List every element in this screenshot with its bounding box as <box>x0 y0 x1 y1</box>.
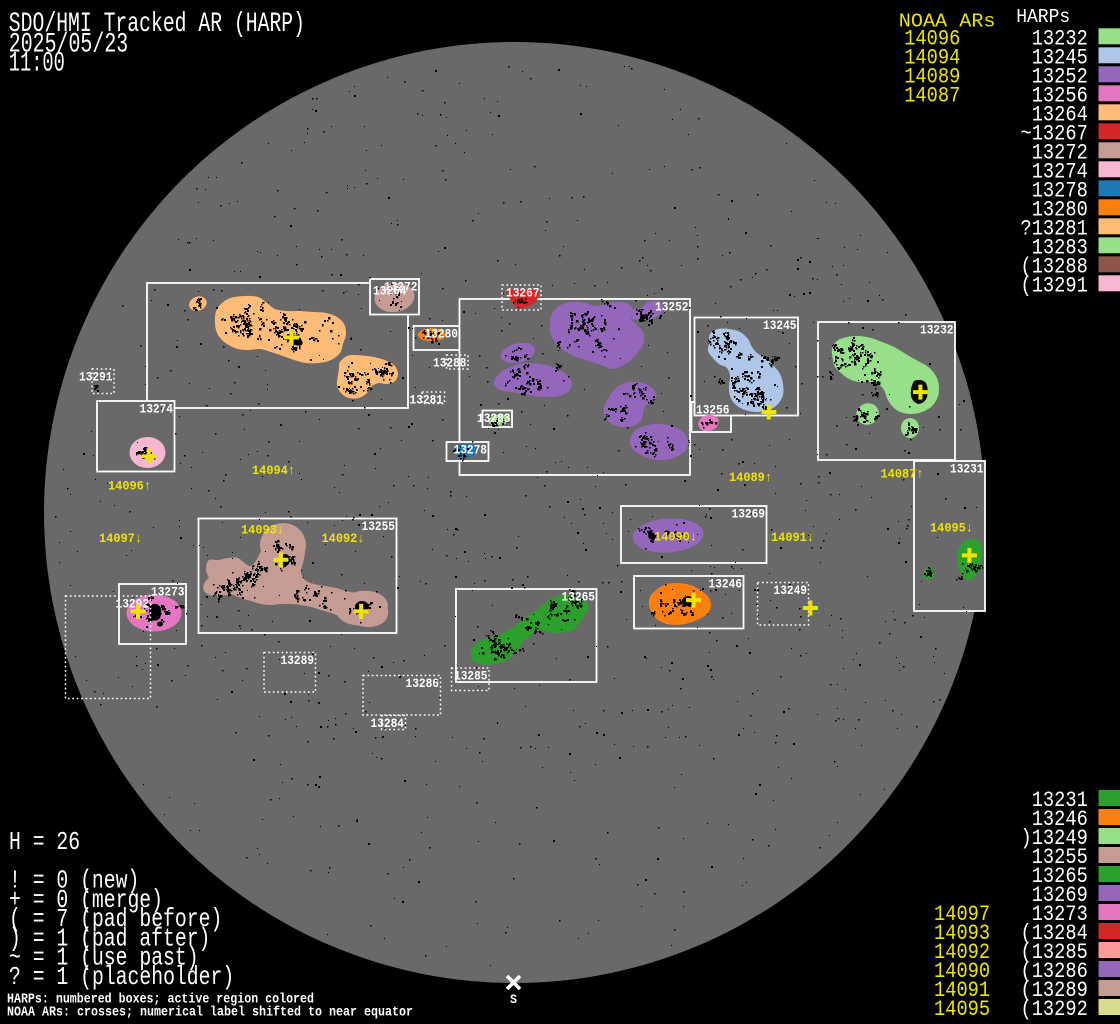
svg-text:13272: 13272 <box>384 279 418 294</box>
svg-text:? = 1 (placeholder): ? = 1 (placeholder) <box>9 962 234 992</box>
svg-text:14087↑: 14087↑ <box>881 467 924 482</box>
svg-text:13256: 13256 <box>696 402 730 417</box>
svg-text:13249: 13249 <box>774 583 808 598</box>
svg-text:14097↓: 14097↓ <box>99 531 142 546</box>
svg-text:S: S <box>510 992 517 1007</box>
svg-text:13255: 13255 <box>362 519 396 534</box>
svg-text:13278: 13278 <box>454 442 488 457</box>
svg-text:13286: 13286 <box>406 676 440 691</box>
svg-text:14093↓: 14093↓ <box>241 523 284 538</box>
svg-text:14095: 14095 <box>934 997 990 1022</box>
svg-text:13232: 13232 <box>920 322 954 337</box>
svg-text:13273: 13273 <box>151 584 185 599</box>
svg-text:14092↓: 14092↓ <box>322 531 365 546</box>
svg-text:NOAA ARs: crosses; numerical l: NOAA ARs: crosses; numerical label shift… <box>7 1004 413 1020</box>
svg-text:13289: 13289 <box>281 653 315 668</box>
svg-text:13274: 13274 <box>140 401 174 416</box>
svg-text:(13292: (13292 <box>1021 997 1088 1022</box>
svg-text:13246: 13246 <box>709 576 743 591</box>
svg-text:13231: 13231 <box>950 461 984 476</box>
svg-text:13245: 13245 <box>763 318 797 333</box>
svg-text:14087: 14087 <box>904 84 960 109</box>
svg-text:13281: 13281 <box>410 392 444 407</box>
svg-text:14095↓: 14095↓ <box>930 521 973 536</box>
svg-text:13284: 13284 <box>371 716 405 731</box>
svg-text:14090↓: 14090↓ <box>654 530 697 545</box>
svg-text:13291: 13291 <box>79 369 113 384</box>
svg-text:14089↑: 14089↑ <box>729 470 772 485</box>
svg-text:HARPs: HARPs <box>1016 6 1070 28</box>
svg-text:13280: 13280 <box>425 326 459 341</box>
svg-text:11:00: 11:00 <box>9 49 65 80</box>
svg-text:13252: 13252 <box>655 299 689 314</box>
svg-text:13288: 13288 <box>433 355 467 370</box>
svg-text:(13291: (13291 <box>1021 274 1088 299</box>
svg-text:13267: 13267 <box>506 285 540 300</box>
svg-text:14094↑: 14094↑ <box>252 463 295 478</box>
svg-text:13292: 13292 <box>116 596 150 611</box>
svg-text:H = 26: H = 26 <box>9 827 80 857</box>
svg-text:13285: 13285 <box>454 668 488 683</box>
svg-text:14091↓: 14091↓ <box>771 530 814 545</box>
svg-text:13265: 13265 <box>562 589 596 604</box>
svg-text:13269: 13269 <box>732 506 766 521</box>
svg-text:13283: 13283 <box>477 411 511 426</box>
svg-text:14096↑: 14096↑ <box>108 479 151 494</box>
